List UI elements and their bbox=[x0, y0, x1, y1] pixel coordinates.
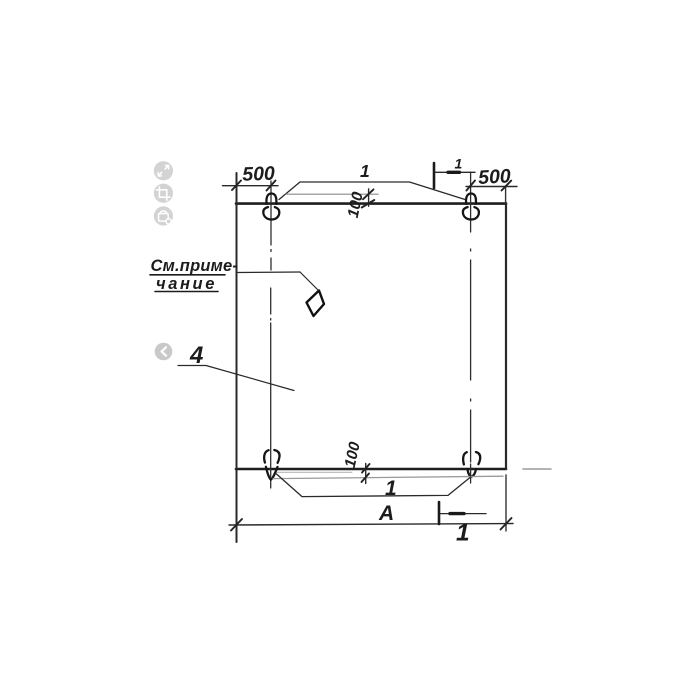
svg-text:500: 500 bbox=[478, 165, 512, 189]
svg-text:1: 1 bbox=[456, 520, 470, 547]
svg-text:500: 500 bbox=[242, 163, 275, 186]
svg-text:1: 1 bbox=[455, 156, 463, 172]
svg-text:чание: чание bbox=[156, 275, 217, 293]
svg-text:См.приме-: См.приме- bbox=[151, 257, 239, 275]
svg-text:1: 1 bbox=[385, 477, 397, 500]
svg-text:100: 100 bbox=[342, 440, 364, 469]
svg-text:1: 1 bbox=[360, 161, 370, 181]
svg-text:А: А bbox=[378, 502, 394, 525]
